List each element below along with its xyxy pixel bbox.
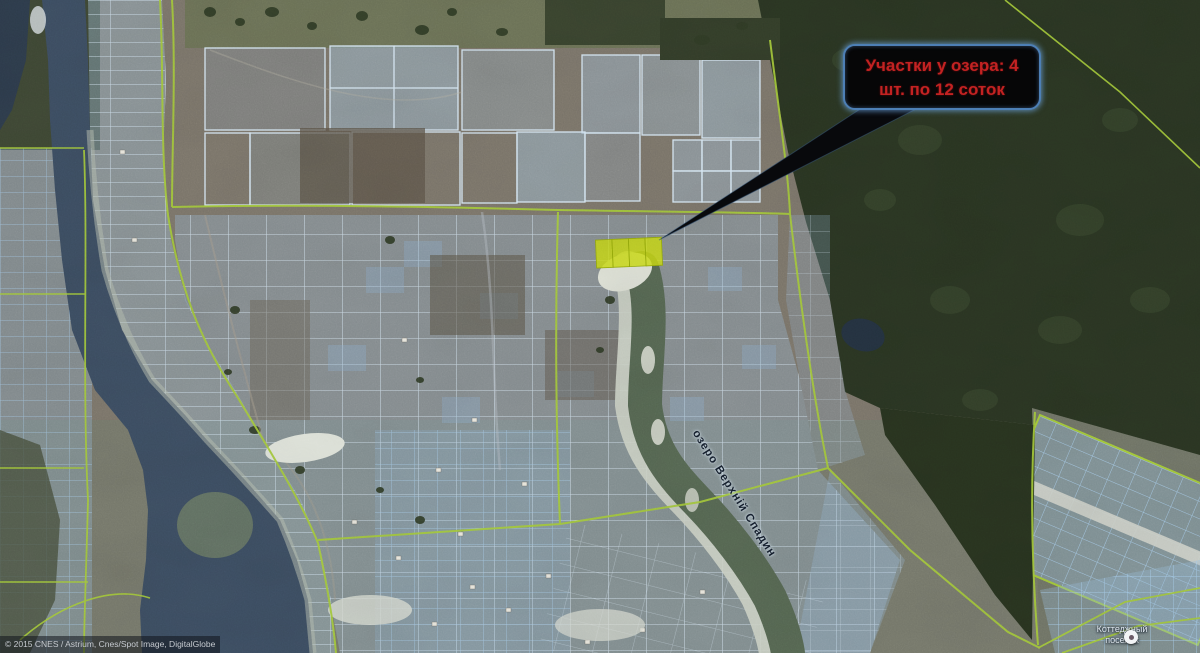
callout-line2: шт. по 12 соток	[845, 78, 1039, 102]
callout-line1: Участки у озера: 4	[845, 54, 1039, 78]
settlement-label: Коттеджный поселок	[1072, 624, 1172, 646]
imagery-attribution: © 2015 CNES / Astrium, Cnes/Spot Image, …	[0, 636, 220, 653]
poi-marker[interactable]	[1124, 630, 1138, 644]
annotation-callout: Участки у озера: 4 шт. по 12 соток	[843, 44, 1041, 110]
settlement-line1: Коттеджный	[1072, 624, 1172, 635]
satellite-map-canvas[interactable]: Участки у озера: 4 шт. по 12 соток озеро…	[0, 0, 1200, 653]
settlement-line2: поселок	[1072, 635, 1172, 646]
